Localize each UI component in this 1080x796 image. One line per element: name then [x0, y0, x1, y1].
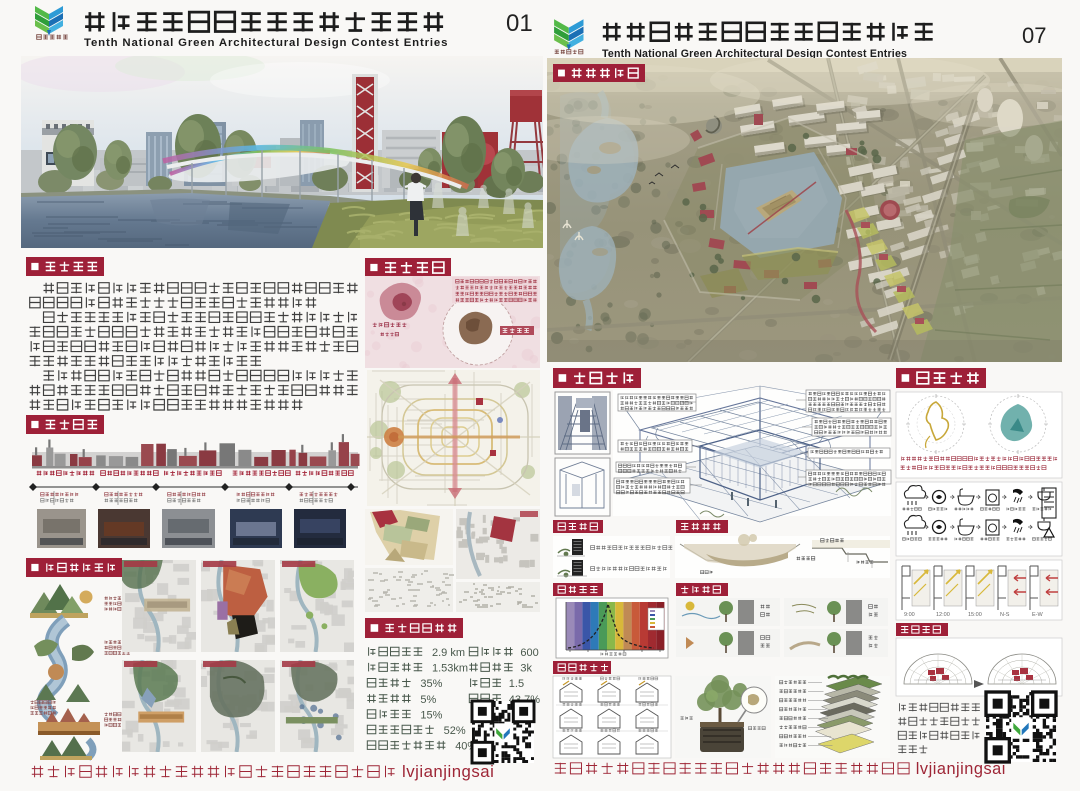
svg-text:2.9 km: 2.9 km [432, 647, 465, 659]
svg-text:5%: 5% [420, 694, 436, 706]
svg-text:3k: 3k [520, 663, 532, 675]
svg-text:07: 07 [1022, 23, 1046, 48]
svg-text:lvjianjingsai: lvjianjingsai [402, 762, 494, 781]
svg-text:15:00: 15:00 [968, 612, 982, 618]
svg-text:1.53km: 1.53km [432, 663, 468, 675]
svg-text:35%: 35% [420, 678, 442, 690]
svg-text:N-S: N-S [1000, 612, 1010, 618]
svg-text:Tenth National Green Architect: Tenth National Green Architectural Desig… [84, 37, 448, 49]
svg-text:12:00: 12:00 [936, 612, 950, 618]
svg-text:E-W: E-W [1032, 612, 1044, 618]
svg-text:600: 600 [520, 647, 538, 659]
svg-text:1.5: 1.5 [509, 678, 524, 690]
svg-text:01: 01 [506, 10, 533, 37]
svg-text:9:00: 9:00 [904, 612, 915, 618]
svg-text:15%: 15% [420, 709, 442, 721]
svg-text:52%: 52% [444, 725, 466, 737]
